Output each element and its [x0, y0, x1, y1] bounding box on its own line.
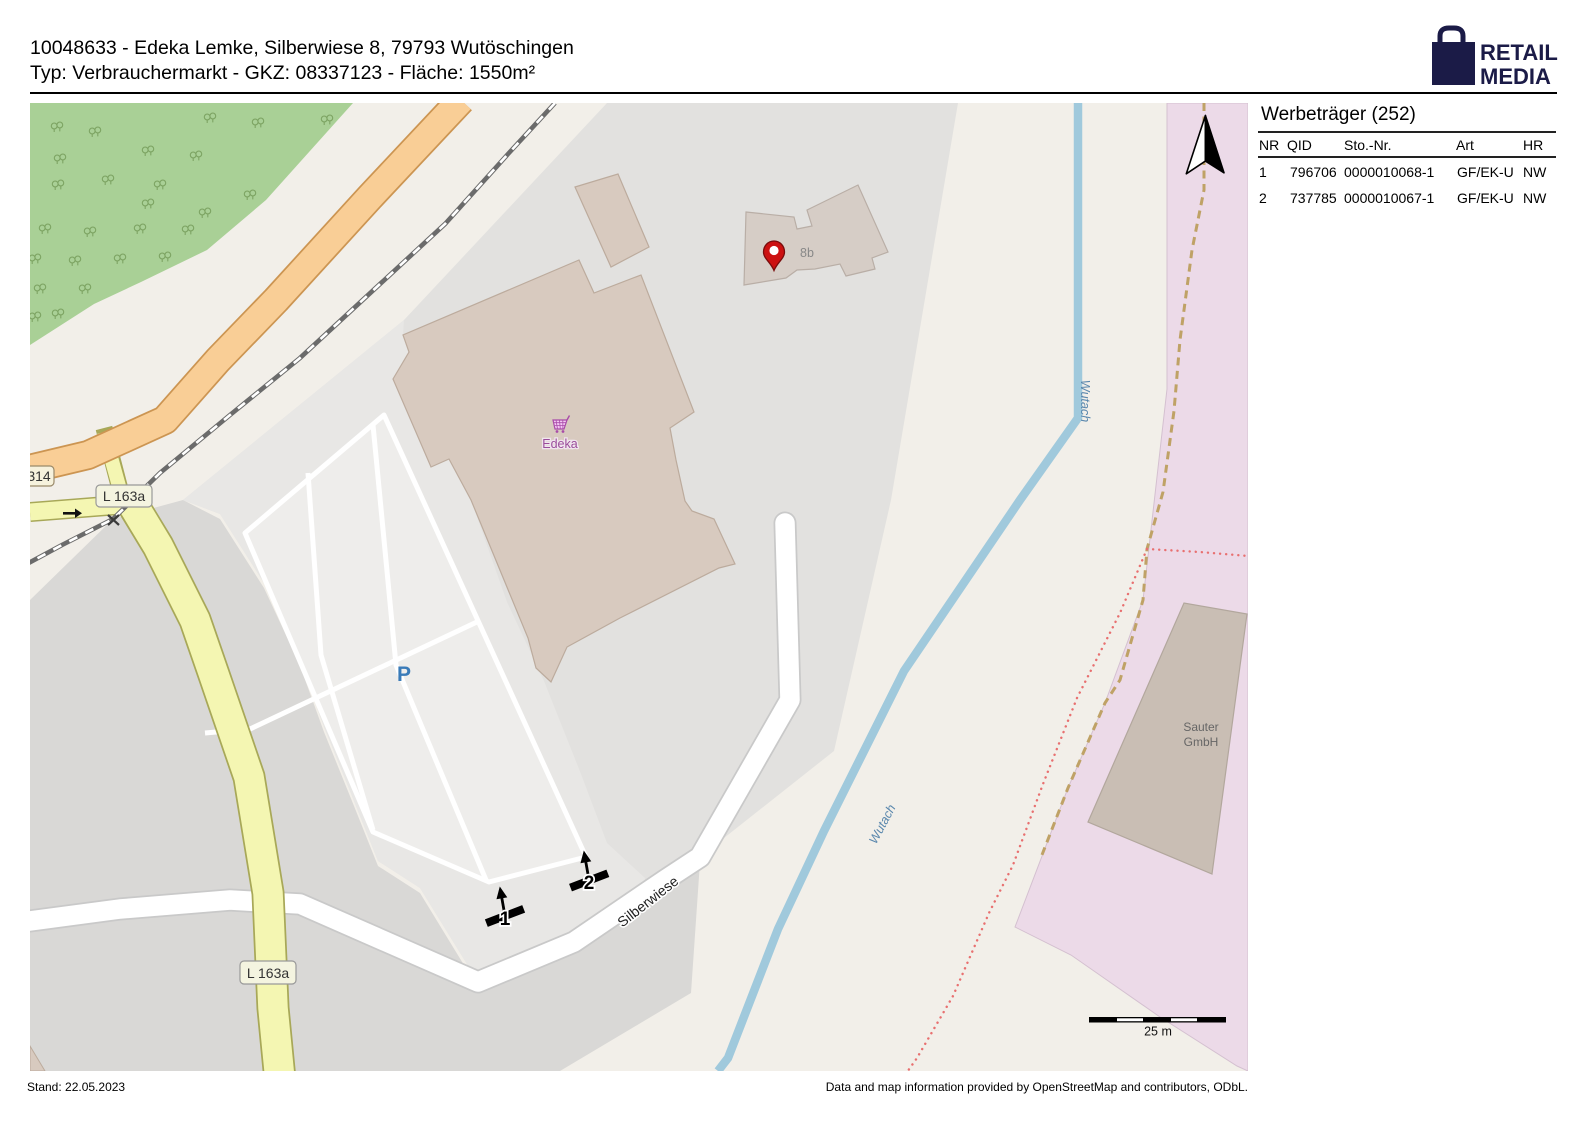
svg-text:314: 314 — [27, 468, 51, 484]
svg-text:Sauter: Sauter — [1183, 720, 1218, 734]
svg-text:25 m: 25 m — [1144, 1025, 1172, 1039]
svg-text:L 163a: L 163a — [103, 488, 146, 504]
svg-text:1: 1 — [500, 909, 511, 930]
svg-text:P: P — [397, 663, 411, 686]
svg-text:GmbH: GmbH — [1184, 735, 1219, 749]
svg-text:L 163a: L 163a — [247, 965, 290, 981]
svg-text:Wutach: Wutach — [1078, 380, 1092, 422]
svg-text:8b: 8b — [800, 246, 814, 260]
svg-text:2: 2 — [584, 873, 595, 894]
svg-text:Edeka: Edeka — [542, 437, 577, 451]
